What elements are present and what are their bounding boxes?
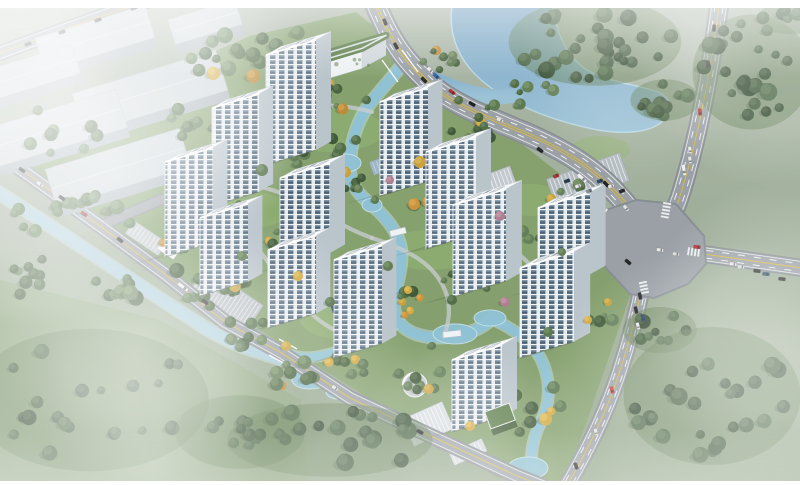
tree-highlight: [475, 113, 480, 118]
top-haze: [0, 8, 800, 78]
bottom-haze: [0, 430, 800, 485]
tree-highlight: [517, 89, 521, 93]
tree-highlight: [415, 157, 422, 164]
tree-highlight: [409, 199, 416, 206]
tree-highlight: [496, 212, 502, 218]
tree-highlight: [514, 104, 518, 108]
tree-highlight: [405, 286, 410, 291]
tree-highlight: [558, 188, 562, 192]
tree-highlight: [480, 122, 485, 127]
tree-highlight: [559, 248, 564, 253]
tree-highlight: [544, 328, 550, 334]
tree-highlight: [387, 176, 392, 181]
pond: [474, 310, 506, 326]
tree-highlight: [363, 96, 368, 101]
tree-highlight: [384, 262, 390, 268]
rendering-frame: [0, 0, 800, 485]
frame-bottom: [0, 481, 800, 485]
tree-highlight: [338, 104, 344, 110]
tree-highlight: [448, 296, 454, 302]
tower-front-facade: [453, 189, 506, 297]
tree-highlight: [333, 85, 339, 91]
tree-highlight: [511, 80, 516, 85]
tree-highlight: [398, 294, 402, 298]
tree-highlight: [352, 136, 358, 142]
tree-highlight: [448, 128, 453, 133]
tree-highlight: [455, 96, 460, 101]
tree-highlight: [336, 143, 343, 150]
tower-side-facade: [506, 180, 522, 281]
tree-highlight: [358, 174, 363, 179]
tree-highlight: [547, 194, 553, 200]
tree-highlight: [372, 196, 377, 201]
tree-highlight: [334, 103, 337, 106]
tree-highlight: [407, 307, 411, 311]
tree-highlight: [449, 271, 453, 275]
aerial-masterplan-rendering: [0, 0, 800, 485]
frame-top: [0, 0, 800, 8]
tree-highlight: [355, 185, 360, 190]
tree-highlight: [417, 294, 421, 298]
tree-highlight: [501, 298, 507, 304]
tree-highlight: [490, 100, 497, 107]
tree-highlight: [442, 278, 446, 282]
tower-side-facade: [590, 184, 606, 275]
